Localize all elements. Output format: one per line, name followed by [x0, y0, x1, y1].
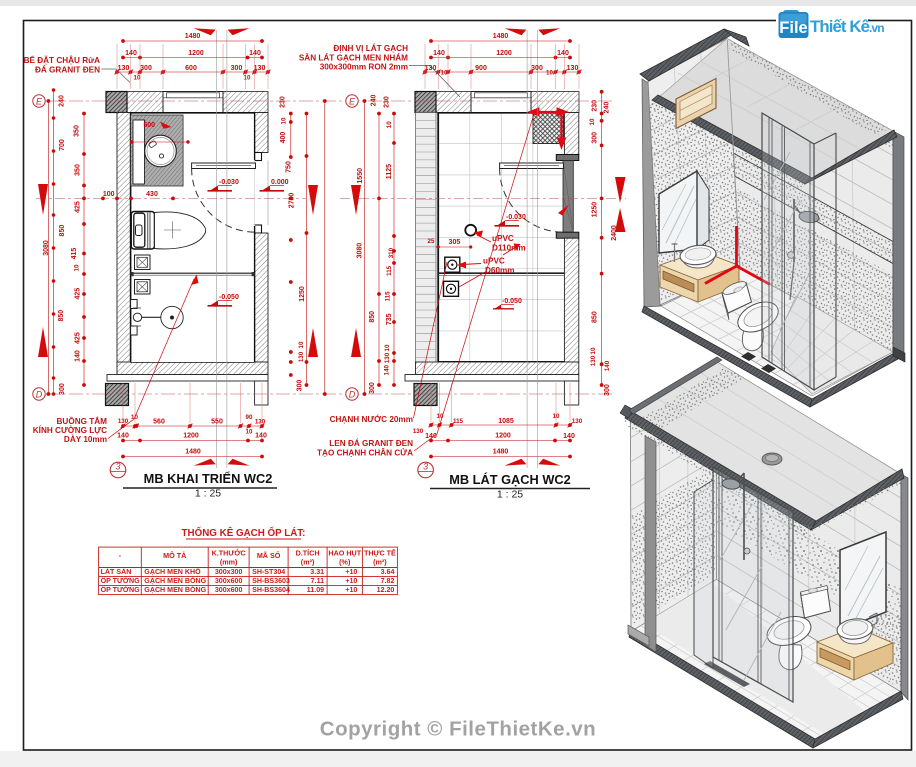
svg-text:MÔ TẢ: MÔ TẢ: [163, 551, 186, 560]
svg-text:3080: 3080: [43, 240, 50, 256]
svg-text:300: 300: [592, 132, 599, 144]
svg-text:10: 10: [74, 264, 81, 271]
svg-text:GẠCH MEN KHÔ: GẠCH MEN KHÔ: [144, 567, 201, 576]
svg-text:MÃ SỐ: MÃ SỐ: [257, 550, 281, 560]
svg-text:240: 240: [371, 94, 378, 106]
svg-text:ĐÁ GRANIT ĐEN: ĐÁ GRANIT ĐEN: [35, 65, 100, 75]
svg-text:1250: 1250: [592, 202, 599, 218]
svg-text:240: 240: [59, 95, 66, 107]
svg-text:415: 415: [71, 248, 78, 260]
svg-text:+10: +10: [345, 568, 357, 576]
svg-text:LEN ĐÁ GRANIT ĐEN: LEN ĐÁ GRANIT ĐEN: [329, 438, 413, 448]
svg-text:1085: 1085: [498, 418, 514, 425]
svg-text:140: 140: [425, 433, 437, 440]
svg-text:7.82: 7.82: [381, 577, 395, 585]
svg-text:550: 550: [211, 419, 223, 426]
svg-text:CHẠNH NƯỚC 20mm: CHẠNH NƯỚC 20mm: [330, 413, 413, 424]
svg-text:10: 10: [546, 70, 553, 77]
svg-text:300: 300: [296, 380, 303, 392]
svg-text:10: 10: [441, 70, 448, 77]
svg-text:310: 310: [388, 247, 395, 258]
svg-text:850: 850: [592, 311, 599, 323]
svg-text:D60mm: D60mm: [485, 266, 515, 275]
svg-text:2400: 2400: [611, 225, 618, 241]
svg-text:850: 850: [58, 310, 65, 322]
svg-text:TẠO CHẠNH CHÂN CỬA: TẠO CHẠNH CHÂN CỬA: [317, 447, 413, 458]
svg-text:1480: 1480: [185, 33, 201, 40]
svg-text:10: 10: [384, 344, 391, 351]
svg-text:130: 130: [567, 65, 579, 72]
svg-text:SH-BS3604: SH-BS3604: [252, 586, 290, 594]
svg-text:1200: 1200: [495, 433, 511, 440]
svg-text:3.64: 3.64: [381, 568, 395, 576]
svg-text:425: 425: [75, 288, 82, 300]
svg-text:140: 140: [563, 433, 575, 440]
svg-text:300: 300: [59, 383, 66, 395]
svg-text:THỰC TẾ: THỰC TẾ: [364, 548, 396, 558]
svg-text:560: 560: [153, 419, 165, 426]
svg-text:900: 900: [475, 65, 487, 72]
svg-text:Copyright © FileThietKe.vn: Copyright © FileThietKe.vn: [320, 718, 596, 741]
svg-text:D: D: [36, 389, 43, 399]
svg-text:SH-BS3603: SH-BS3603: [252, 577, 290, 585]
svg-text:1200: 1200: [188, 50, 204, 57]
svg-text:240: 240: [603, 102, 610, 114]
svg-text:GẠCH MEN BÓNG: GẠCH MEN BÓNG: [144, 585, 206, 594]
svg-text:uPVC: uPVC: [492, 234, 514, 243]
svg-text:350: 350: [74, 164, 81, 176]
svg-text:300: 300: [369, 382, 376, 394]
svg-text:300x600: 300x600: [215, 586, 243, 594]
svg-text:HAO HỤT: HAO HỤT: [328, 549, 361, 558]
svg-text:LÁT SÀN: LÁT SÀN: [101, 567, 132, 576]
svg-text:(%): (%): [339, 558, 351, 567]
svg-text:750: 750: [286, 161, 293, 173]
svg-text:10: 10: [590, 347, 597, 354]
svg-text:10: 10: [298, 341, 305, 348]
svg-text:230: 230: [592, 100, 599, 112]
svg-text:10: 10: [244, 75, 251, 82]
svg-text:1480: 1480: [493, 33, 509, 40]
svg-text:D: D: [349, 389, 356, 399]
svg-text:DÀY 10mm: DÀY 10mm: [64, 434, 107, 444]
svg-text:1 : 25: 1 : 25: [195, 488, 221, 500]
svg-text:140: 140: [255, 433, 267, 440]
svg-text:+10: +10: [345, 586, 357, 594]
svg-text:140: 140: [249, 50, 261, 57]
svg-text:3: 3: [115, 462, 120, 472]
svg-text:305: 305: [449, 239, 461, 246]
svg-text:130: 130: [572, 418, 583, 425]
svg-text:300x300: 300x300: [215, 568, 243, 576]
svg-text:300: 300: [604, 384, 611, 396]
svg-text:140: 140: [383, 364, 390, 375]
svg-text:1 : 25: 1 : 25: [497, 489, 523, 501]
svg-text:130: 130: [590, 355, 597, 366]
svg-text:0.000: 0.000: [271, 179, 289, 186]
svg-text:140: 140: [75, 350, 82, 362]
svg-text:-0.050: -0.050: [219, 294, 239, 301]
svg-text:ỐP TƯỜNG: ỐP TƯỜNG: [101, 575, 140, 585]
svg-text:11.09: 11.09: [307, 586, 324, 594]
svg-text:130: 130: [298, 351, 305, 362]
svg-text:130: 130: [254, 65, 266, 72]
svg-text:K.THƯỚC: K.THƯỚC: [212, 549, 246, 558]
svg-text:1550: 1550: [357, 168, 364, 184]
svg-text:300: 300: [231, 65, 243, 72]
svg-text:300x300mm RON 2mm: 300x300mm RON 2mm: [320, 63, 408, 72]
svg-text:10: 10: [386, 121, 393, 128]
svg-text:+10: +10: [345, 577, 357, 585]
svg-text:100: 100: [103, 191, 115, 198]
svg-text:130: 130: [384, 352, 391, 363]
svg-text:E: E: [349, 96, 356, 106]
svg-text:425: 425: [75, 201, 82, 213]
svg-text:300: 300: [140, 65, 152, 72]
svg-text:10: 10: [246, 429, 253, 436]
svg-text:BỂ ĐẶT CHẬU RửA: BỂ ĐẶT CHẬU RửA: [24, 54, 101, 65]
svg-text:-0.050: -0.050: [502, 298, 522, 305]
svg-text:(mm): (mm): [220, 558, 238, 567]
svg-text:25: 25: [428, 238, 435, 245]
svg-text:ỐP TƯỜNG: ỐP TƯỜNG: [101, 584, 140, 594]
svg-text:425: 425: [75, 332, 82, 344]
svg-text:1480: 1480: [185, 449, 201, 456]
svg-text:140: 140: [117, 433, 129, 440]
svg-text:300x600: 300x600: [215, 577, 243, 585]
svg-text:SH-ST304: SH-ST304: [252, 568, 285, 576]
svg-text:1200: 1200: [496, 50, 512, 57]
svg-text:130: 130: [413, 428, 424, 435]
svg-text:115: 115: [453, 418, 464, 425]
svg-text:130: 130: [118, 65, 130, 72]
svg-text:115: 115: [385, 291, 392, 302]
svg-text:1125: 1125: [386, 164, 393, 179]
svg-text:GẠCH MEN BÓNG: GẠCH MEN BÓNG: [144, 576, 206, 585]
svg-text:7.11: 7.11: [311, 577, 324, 585]
svg-text:MB LÁT GẠCH WC2: MB LÁT GẠCH WC2: [449, 472, 571, 487]
svg-text:230: 230: [383, 96, 390, 108]
svg-text:850: 850: [59, 225, 66, 237]
svg-text:MB KHAI TRIỂN WC2: MB KHAI TRIỂN WC2: [144, 471, 273, 486]
svg-text:(m²): (m²): [301, 558, 315, 567]
svg-text:uPVC: uPVC: [483, 257, 505, 266]
svg-text:ĐỊNH VỊ LÁT GẠCH: ĐỊNH VỊ LÁT GẠCH: [333, 43, 408, 53]
svg-text:350: 350: [74, 125, 81, 137]
svg-text:(m²): (m²): [373, 558, 387, 567]
svg-text:300: 300: [531, 65, 543, 72]
svg-text:E: E: [36, 96, 43, 106]
svg-text:600: 600: [185, 65, 197, 72]
svg-text:115: 115: [386, 265, 393, 276]
svg-text:File: File: [779, 19, 807, 37]
svg-text:140: 140: [604, 360, 611, 371]
svg-text:SÀN LÁT GẠCH MEN NHÁM: SÀN LÁT GẠCH MEN NHÁM: [299, 53, 408, 63]
svg-text:140: 140: [433, 50, 445, 57]
svg-text:1250: 1250: [299, 286, 306, 302]
svg-text:500: 500: [143, 122, 155, 129]
svg-text:430: 430: [146, 191, 158, 198]
svg-text:3: 3: [423, 462, 428, 472]
svg-text:10: 10: [589, 118, 596, 125]
svg-text:BUỒNG TẮM: BUỒNG TẮM: [57, 415, 108, 426]
svg-text:400: 400: [280, 132, 287, 144]
svg-text:1200: 1200: [183, 433, 199, 440]
svg-text:-0.030: -0.030: [219, 179, 239, 186]
svg-text:2780: 2780: [289, 193, 296, 209]
svg-text:THỐNG KÊ GẠCH ỐP LÁT:: THỐNG KÊ GẠCH ỐP LÁT:: [182, 527, 306, 539]
svg-text:230: 230: [280, 96, 287, 108]
svg-text:D.TÍCH: D.TÍCH: [296, 549, 320, 558]
svg-text:10: 10: [281, 117, 288, 124]
svg-text:700: 700: [59, 139, 66, 151]
svg-text:12.20: 12.20: [377, 586, 395, 594]
svg-text:735: 735: [386, 313, 393, 325]
svg-text:1480: 1480: [493, 449, 509, 456]
svg-text:3080: 3080: [356, 243, 363, 259]
svg-text:90: 90: [246, 414, 253, 421]
svg-text:-0.030: -0.030: [506, 214, 526, 221]
svg-text:140: 140: [125, 50, 137, 57]
svg-text:140: 140: [557, 50, 569, 57]
svg-text:KÍNH CƯỜNG LỰC: KÍNH CƯỜNG LỰC: [33, 424, 107, 435]
svg-text:850: 850: [369, 311, 376, 323]
svg-text:10: 10: [553, 413, 560, 420]
svg-text:3.31: 3.31: [310, 568, 324, 576]
svg-text:130: 130: [255, 419, 266, 426]
